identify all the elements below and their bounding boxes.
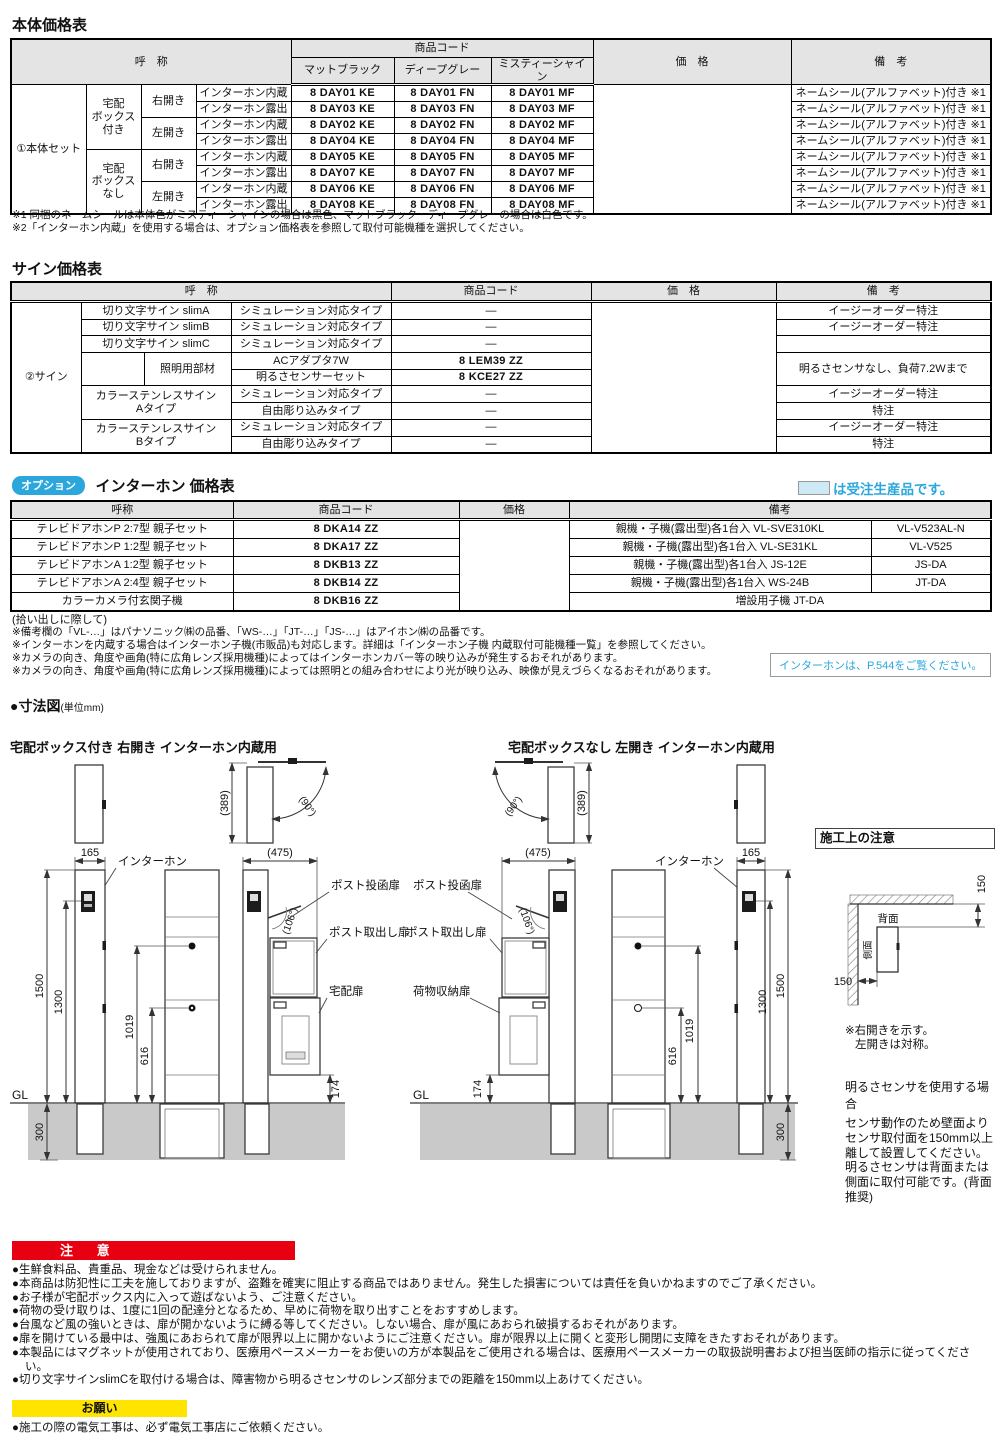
front-elevation — [165, 870, 219, 1103]
code-cell: 8 DAY05 FN — [394, 150, 491, 166]
intercom-camera — [250, 894, 258, 901]
mount-cell: インターホン内蔵 — [196, 182, 291, 198]
delivery-door-label: 宅配扉 — [329, 984, 364, 998]
height-dim: 174 — [472, 1080, 484, 1098]
swing-angle-label: (106°) — [281, 906, 301, 935]
post-out-door-label: ポスト取出し扉 — [406, 925, 487, 939]
code-cell: 8 DAY03 FN — [394, 102, 491, 118]
height-dim: 1300 — [53, 990, 65, 1014]
caution-item: ●扉を開けている最中は、強風にあおられて扉が限界以上に開かないようにご注意くださ… — [12, 1333, 993, 1347]
price-empty-cell — [591, 302, 776, 454]
latch-icon — [103, 1004, 107, 1013]
type-cell: 自由彫り込みタイプ — [231, 436, 391, 453]
code-cell: 8 DAY01 FN — [394, 85, 491, 102]
type-cell: シミュレーション対応タイプ — [231, 319, 391, 336]
mount-cell: インターホン内蔵 — [196, 150, 291, 166]
remark-cell: ネームシール(アルファベット)付き ※1 — [791, 150, 991, 166]
depth-dim: (475) — [267, 847, 293, 859]
post-knob — [189, 943, 196, 950]
clearance-dim: 150 — [834, 976, 852, 988]
opening-note-2: 左開きは対称。 — [855, 1038, 1000, 1052]
box-with-cell: 宅配 ボックス 付き — [86, 85, 141, 150]
request-item: ●施工の際の電気工事は、必ず電気工事店にご依頼ください。 — [12, 1422, 993, 1436]
latch-icon — [533, 942, 545, 948]
depth-dim: 300 — [34, 1123, 46, 1141]
type-cell: ACアダプタ7W — [231, 353, 391, 370]
depth-dim: (389) — [576, 790, 588, 816]
remark-cell: 明るさセンサなし、負荷7.2Wまで — [776, 353, 991, 386]
code-cell: 8 DAY04 FN — [394, 134, 491, 150]
option-note: ※備考欄の「VL-…」はパナソニック㈱の品番、「WS-…」「JT-…」「JS-…… — [12, 626, 491, 639]
code-cell: — — [391, 436, 591, 453]
color-misty-shine: ミスティーシャイン — [491, 58, 593, 85]
type-cell: 明るさセンサーセット — [231, 369, 391, 386]
code-cell: 8 DKB13 ZZ — [233, 557, 459, 575]
width-dim: 165 — [742, 847, 760, 859]
back-face-label: 背面 — [878, 912, 899, 925]
height-dim: 1300 — [757, 990, 769, 1014]
mount-cell: インターホン露出 — [196, 134, 291, 150]
latch-icon — [734, 800, 738, 809]
header-code: 商品コード — [291, 39, 593, 58]
latch-icon — [735, 1004, 739, 1013]
code-cell: 8 DAY01 MF — [491, 85, 593, 102]
table-row: ②サイン 切り文字サイン slimA シミュレーション対応タイプ — イージーオ… — [11, 302, 991, 320]
remark-cell: イージーオーダー特注 — [776, 319, 991, 336]
table-row: 照明用部材 ACアダプタ7W 8 LEM39 ZZ 明るさセンサなし、負荷7.2… — [11, 353, 991, 370]
code-cell: 8 DKB14 ZZ — [233, 575, 459, 593]
code-cell: 8 DAY05 MF — [491, 150, 593, 166]
name-cell: 切り文字サイン slimC — [81, 336, 231, 353]
sign-table-title: サイン価格表 — [12, 258, 102, 279]
mount-cell: インターホン露出 — [196, 102, 291, 118]
spacer-cell — [81, 353, 144, 386]
request-banner: お願い — [12, 1400, 187, 1417]
height-dim: 1500 — [775, 974, 787, 998]
hinge-icon — [524, 758, 533, 764]
sensor-note-title: 明るさセンサを使用する場合 — [845, 1078, 1000, 1112]
latch-icon — [897, 943, 900, 950]
box-without-cell: 宅配 ボックス なし — [86, 150, 141, 215]
latch-icon — [274, 1002, 286, 1008]
remark-cell: VL-V525 — [871, 539, 991, 557]
type-cell: 自由彫り込みタイプ — [231, 403, 391, 420]
header-remarks: 備 考 — [776, 282, 991, 302]
remark-cell — [776, 336, 991, 353]
option-note: ※インターホンを内蔵する場合はインターホン子機(市販品)も対応します。詳細は「イ… — [12, 639, 712, 652]
height-dim: 616 — [139, 1047, 151, 1065]
swing-angle-label: (106°) — [517, 906, 537, 935]
footnote-1: ※1 同梱のネームシールは本体色がミスティーシャインの場合は黒色、マットブラック… — [12, 209, 593, 222]
foundation — [551, 1104, 575, 1154]
header-name: 呼 称 — [11, 39, 291, 85]
pickup-note-title: (拾い出しに際して) — [12, 611, 107, 627]
depth-dim: (475) — [525, 847, 551, 859]
remark-cell: 親機・子機(露出型)各1台入 VL-SVE310KL — [569, 520, 871, 539]
table-row: カラーステンレスサイン Aタイプ シミュレーション対応タイプ — イージーオーダ… — [11, 386, 991, 403]
header-price: 価 格 — [593, 39, 791, 85]
gl-label: GL — [413, 1088, 429, 1102]
luggage-door-label: 荷物収納扉 — [413, 984, 471, 998]
top-view-side — [75, 765, 103, 843]
intercom-camera — [84, 894, 92, 901]
header-price: 価格 — [459, 501, 569, 520]
intercom-label: インターホン — [655, 855, 724, 868]
latch-icon — [533, 1002, 545, 1008]
mount-cell: インターホン内蔵 — [196, 85, 291, 102]
opening-note-1: ※右開きを示す。 — [845, 1024, 1000, 1038]
caution-banner: 注 意 — [12, 1241, 295, 1260]
latch-icon — [103, 941, 107, 950]
code-cell: 8 DAY04 MF — [491, 134, 593, 150]
post-in-door-label: ポスト投函扉 — [413, 878, 482, 892]
hinge-icon — [288, 758, 297, 764]
caution-item: ●台風など風の強いときは、扉が開かないように縛る等してください。しない場合、扉が… — [12, 1319, 993, 1333]
caution-item: ●荷物の受け取りは、1度に1回の配達分となるため、早めに荷物を取り出すことをおす… — [12, 1305, 993, 1319]
remark-cell: JS-DA — [871, 557, 991, 575]
wall-top — [850, 895, 953, 904]
code-cell: 8 DAY01 KE — [291, 85, 394, 102]
mount-cell: インターホン内蔵 — [196, 118, 291, 134]
header-remarks: 備考 — [569, 501, 991, 520]
remark-cell: ネームシール(アルファベット)付き ※1 — [791, 85, 991, 102]
remark-cell: イージーオーダー特注 — [776, 419, 991, 436]
table-row: テレビドアホンP 2:7型 親子セット 8 DKA14 ZZ 親機・子機(露出型… — [11, 520, 991, 539]
mount-cell: インターホン露出 — [196, 166, 291, 182]
width-dim: 165 — [81, 847, 99, 859]
code-cell: 8 DAY07 KE — [291, 166, 394, 182]
gl-label: GL — [12, 1088, 28, 1102]
intercom-camera — [745, 894, 753, 901]
remark-cell: イージーオーダー特注 — [776, 302, 991, 320]
name-cell: カラーカメラ付玄関子機 — [11, 593, 233, 612]
remark-cell: ネームシール(アルファベット)付き ※1 — [791, 198, 991, 215]
latch-icon — [274, 942, 286, 948]
wall-left — [848, 904, 858, 1005]
height-dim: 1019 — [124, 1015, 136, 1039]
code-cell: 8 DKB16 ZZ — [233, 593, 459, 612]
remark-cell: 特注 — [776, 403, 991, 420]
option-note: ※カメラの向き、角度や画角(特に広角レンズ採用機種)によってはインターホンカバー… — [12, 652, 623, 665]
see-page-544-note: インターホンは、P.544をご覧ください。 — [770, 653, 991, 677]
unit-pl an-view — [877, 927, 898, 972]
made-to-order-swatch — [798, 481, 830, 495]
top-view-side — [737, 765, 765, 843]
price-empty-cell — [459, 520, 569, 612]
remark-cell: ネームシール(アルファベット)付き ※1 — [791, 118, 991, 134]
made-to-order-legend: は受注生産品です。 — [833, 482, 953, 497]
caution-item: ●生鮮食料品、貴重品、現金などは受けられません。 — [12, 1264, 993, 1278]
height-dim: 1019 — [684, 1019, 696, 1043]
clearance-diagram: 背面 側面 150 150 — [815, 854, 1000, 1016]
depth-dim: 300 — [775, 1123, 787, 1141]
intercom-label: インターホン — [118, 855, 187, 868]
foundation — [245, 1104, 269, 1154]
remark-cell: ネームシール(アルファベット)付き ※1 — [791, 134, 991, 150]
remark-cell: 親機・子機(露出型)各1台入 VL-SE31KL — [569, 539, 871, 557]
top-view-plan — [548, 767, 574, 843]
code-cell: 8 DAY04 KE — [291, 134, 394, 150]
name-cell: カラーステンレスサイン Bタイプ — [81, 419, 231, 453]
dims-unit: (単位mm) — [60, 703, 103, 714]
group-cell: ②サイン — [11, 302, 81, 454]
code-cell: 8 KCE27 ZZ — [391, 369, 591, 386]
header-remarks: 備 考 — [791, 39, 991, 85]
caution-item: ●本製品にはマグネットが使用されており、医療用ペースメーカーをお使いの方が本製品… — [12, 1347, 980, 1375]
option-table-title: インターホン 価格表 — [95, 478, 234, 495]
latch-icon — [102, 800, 106, 809]
name-cell: 切り文字サイン slimB — [81, 319, 231, 336]
main-price-table: 呼 称 商品コード 価 格 備 考 マットブラック ディープグレー ミスティーシ… — [10, 38, 992, 215]
leader-line — [468, 892, 512, 919]
price-empty-cell — [593, 85, 791, 215]
code-cell: 8 DAY02 FN — [394, 118, 491, 134]
delivery-box — [270, 998, 320, 1075]
caution-item: ●切り文字サインslimCを取付ける場合は、障害物から明るさセンサのレンズ部分ま… — [12, 1374, 993, 1388]
table-row: 左開き インターホン内蔵 8 DAY02 KE 8 DAY02 FN 8 DAY… — [11, 118, 991, 134]
code-cell: 8 DAY06 KE — [291, 182, 394, 198]
header-code: 商品コード — [233, 501, 459, 520]
table-row: 宅配 ボックス なし 右開き インターホン内蔵 8 DAY05 KE 8 DAY… — [11, 150, 991, 166]
remark-cell: イージーオーダー特注 — [776, 386, 991, 403]
dimension-drawing: (90°) (389) 165 インターホン 1500 1300 — [0, 715, 810, 1235]
option-badge: オプション — [12, 476, 85, 495]
table-row: 切り文字サイン slimC シミュレーション対応タイプ — — [11, 336, 991, 353]
leader-line — [470, 998, 500, 1013]
remark-cell: 親機・子機(露出型)各1台入 JS-12E — [569, 557, 871, 575]
code-cell: 8 DAY06 FN — [394, 182, 491, 198]
catalog-page: 本体価格表 呼 称 商品コード 価 格 備 考 マットブラック ディープグレー … — [0, 0, 1000, 1446]
code-cell: 8 DKA17 ZZ — [233, 539, 459, 557]
option-note: ※カメラの向き、角度や画角(特に広角レンズ採用機種)によっては照明との組み合わせ… — [12, 665, 717, 678]
dimension-figures: 宅配ボックス付き 右開き インターホン内蔵用 宅配ボックスなし 左開き インター… — [0, 715, 1000, 1250]
front-elevation — [612, 870, 665, 1103]
table-row: 切り文字サイン slimB シミュレーション対応タイプ — イージーオーダー特注 — [11, 319, 991, 336]
remark-cell: JT-DA — [871, 575, 991, 593]
delivery-slot — [286, 1052, 305, 1059]
code-cell: — — [391, 336, 591, 353]
post-knob — [635, 943, 642, 950]
type-cell: シミュレーション対応タイプ — [231, 336, 391, 353]
foundation — [608, 1104, 670, 1158]
name-cell: テレビドアホンP 1:2型 親子セット — [11, 539, 233, 557]
table-row: ①本体セット 宅配 ボックス 付き 右開き インターホン内蔵 8 DAY01 K… — [11, 85, 991, 102]
remark-cell: ネームシール(アルファベット)付き ※1 — [791, 182, 991, 198]
code-cell: — — [391, 319, 591, 336]
code-cell: 8 LEM39 ZZ — [391, 353, 591, 370]
leader-line — [285, 892, 329, 921]
remark-cell: ネームシール(アルファベット)付き ※1 — [791, 102, 991, 118]
left-open-cell: 左開き — [141, 118, 196, 150]
group-cell: ①本体セット — [11, 85, 86, 215]
code-cell: 8 DAY03 MF — [491, 102, 593, 118]
code-cell: 8 DAY07 FN — [394, 166, 491, 182]
intercom-speaker — [84, 904, 92, 907]
remark-cell: 特注 — [776, 436, 991, 453]
intercom-camera — [556, 894, 564, 901]
sign-price-table: 呼 称 商品コード 価 格 備 考 ②サイン 切り文字サイン slimA シミュ… — [10, 281, 992, 454]
height-dim: 174 — [330, 1080, 342, 1098]
clearance-dim: 150 — [976, 875, 988, 893]
color-deep-grey: ディープグレー — [394, 58, 491, 85]
right-open-cell: 右開き — [141, 150, 196, 182]
name-cell: テレビドアホンA 1:2型 親子セット — [11, 557, 233, 575]
name-cell: テレビドアホンP 2:7型 親子セット — [11, 520, 233, 539]
code-cell: — — [391, 302, 591, 320]
height-dim: 1500 — [34, 974, 46, 998]
installation-note-title: 施工上の注意 — [815, 828, 995, 849]
post-out-door-label: ポスト取出し扉 — [329, 925, 410, 939]
caution-item: ●お子様が宅配ボックス内に入って遊ばないよう、ご注意ください。 — [12, 1292, 993, 1306]
header-name: 呼称 — [11, 501, 233, 520]
code-cell: 8 DAY05 KE — [291, 150, 394, 166]
dims-title: ●寸法図 — [10, 698, 60, 714]
sensor-note-body: センサ動作のため壁面よりセンサ取付面を150mm以上離して設置してください。明る… — [845, 1116, 997, 1205]
leader-line — [490, 939, 502, 953]
code-cell: 8 DAY03 KE — [291, 102, 394, 118]
remark-cell: ネームシール(アルファベット)付き ※1 — [791, 166, 991, 182]
code-cell: 8 DAY02 KE — [291, 118, 394, 134]
type-cell: シミュレーション対応タイプ — [231, 302, 391, 320]
type-cell: シミュレーション対応タイプ — [231, 386, 391, 403]
footnote-2: ※2「インターホン内蔵」を使用する場合は、オプション価格表を参照して取付可能機種… — [12, 222, 530, 235]
right-open-cell: 右開き — [141, 85, 196, 118]
header-name: 呼 称 — [11, 282, 391, 302]
knob-center — [191, 1007, 193, 1009]
foundation — [77, 1104, 103, 1154]
name-cell: テレビドアホンA 2:4型 親子セット — [11, 575, 233, 593]
post-in-door-label: ポスト投函扉 — [331, 878, 400, 892]
remark-cell: VL-V523AL-N — [871, 520, 991, 539]
code-cell: — — [391, 403, 591, 420]
depth-dim: (389) — [219, 790, 231, 816]
height-dim: 616 — [667, 1047, 679, 1065]
intercom-price-table: 呼称 商品コード 価格 備考 テレビドアホンP 2:7型 親子セット 8 DKA… — [10, 500, 992, 612]
name-cell: 切り文字サイン slimA — [81, 302, 231, 320]
luggage-box — [499, 998, 549, 1075]
code-cell: 8 DAY06 MF — [491, 182, 593, 198]
code-cell: — — [391, 419, 591, 436]
lighting-parts-cell: 照明用部材 — [144, 353, 231, 386]
table-row: カラーステンレスサイン Bタイプ シミュレーション対応タイプ — イージーオーダ… — [11, 419, 991, 436]
top-view-plan — [247, 767, 273, 843]
color-matte-black: マットブラック — [291, 58, 394, 85]
foundation — [739, 1104, 763, 1154]
installation-note-panel: 施工上の注意 背面 側面 150 1 — [815, 828, 1000, 1205]
main-table-title: 本体価格表 — [12, 14, 87, 35]
header-code: 商品コード — [391, 282, 591, 302]
remark-cell: 親機・子機(露出型)各1台入 WS-24B — [569, 575, 871, 593]
foundation — [160, 1104, 224, 1158]
latch-icon — [735, 941, 739, 950]
caution-item: ●本商品は防犯性に工夫を施しておりますが、盗難を確実に阻止する商品ではありません… — [12, 1278, 993, 1292]
code-cell: 8 DAY07 MF — [491, 166, 593, 182]
name-cell: カラーステンレスサイン Aタイプ — [81, 386, 231, 419]
remark-cell: 増設用子機 JT-DA — [569, 593, 991, 612]
code-cell: 8 DKA14 ZZ — [233, 520, 459, 539]
side-face-label: 側面 — [862, 940, 874, 959]
type-cell: シミュレーション対応タイプ — [231, 419, 391, 436]
header-price: 価 格 — [591, 282, 776, 302]
table-row: 左開き インターホン内蔵 8 DAY06 KE 8 DAY06 FN 8 DAY… — [11, 182, 991, 198]
code-cell: — — [391, 386, 591, 403]
code-cell: 8 DAY02 MF — [491, 118, 593, 134]
